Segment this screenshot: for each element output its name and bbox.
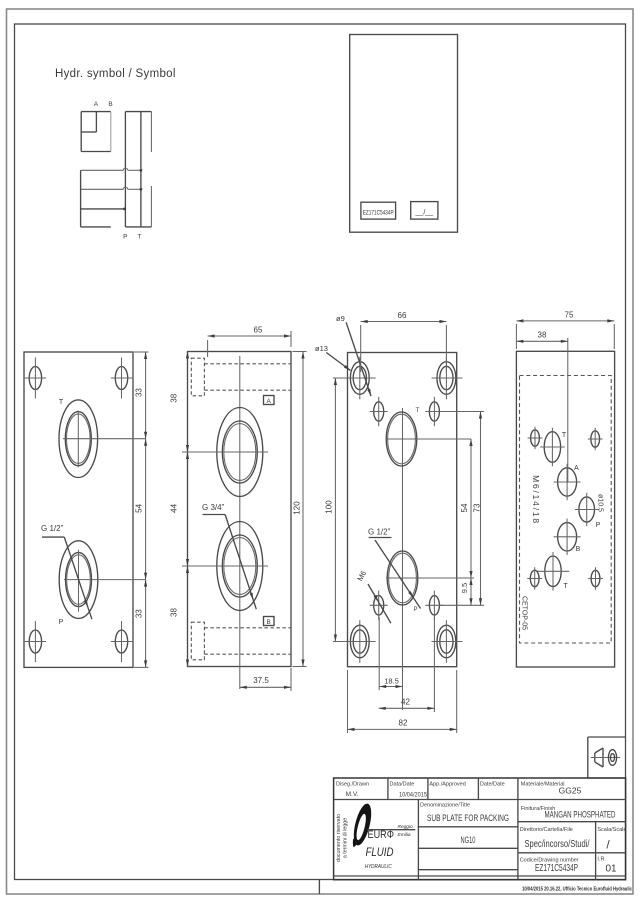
svg-text:B: B xyxy=(576,546,581,553)
svg-text:ø9: ø9 xyxy=(336,314,345,323)
svg-text:P: P xyxy=(59,619,64,626)
svg-text:A: A xyxy=(94,101,99,108)
svg-text:G 1/2”: G 1/2” xyxy=(41,524,64,533)
svg-text:66: 66 xyxy=(398,311,407,320)
svg-text:10/04/2015: 10/04/2015 xyxy=(399,792,427,799)
svg-text:73: 73 xyxy=(473,503,482,512)
svg-text:Spec/incorso/Studi/: Spec/incorso/Studi/ xyxy=(525,838,590,850)
svg-text:82: 82 xyxy=(399,719,408,728)
svg-text:T: T xyxy=(563,583,568,590)
svg-text:M6/14/18: M6/14/18 xyxy=(531,475,541,525)
svg-text:65: 65 xyxy=(254,326,263,335)
svg-text:37.5: 37.5 xyxy=(253,676,269,685)
svg-text:M.V.: M.V. xyxy=(346,791,359,798)
svg-text:EZ171C5434P: EZ171C5434P xyxy=(535,862,578,874)
svg-text:54: 54 xyxy=(460,503,469,512)
svg-text:NG10: NG10 xyxy=(461,835,476,845)
svg-text:Data/Date: Data/Date xyxy=(390,782,415,788)
svg-text:I.R.: I.R. xyxy=(597,856,606,862)
svg-text:EZ171C5434P: EZ171C5434P xyxy=(363,210,394,217)
svg-text:Hydr. symbol / Symbol: Hydr. symbol / Symbol xyxy=(55,68,176,80)
svg-text:38: 38 xyxy=(170,393,179,402)
svg-text:GG25: GG25 xyxy=(559,786,582,796)
svg-text:T: T xyxy=(562,432,567,439)
svg-text:B: B xyxy=(267,619,271,626)
svg-text:A: A xyxy=(574,465,579,472)
svg-text:Date/Date: Date/Date xyxy=(480,782,505,788)
svg-text:Emilia: Emilia xyxy=(398,832,411,838)
svg-text:T: T xyxy=(138,234,142,241)
svg-text:Scala/Scale: Scala/Scale xyxy=(597,827,626,833)
svg-text:FLUID: FLUID xyxy=(366,845,394,859)
svg-text:33: 33 xyxy=(135,388,144,397)
svg-text:T: T xyxy=(59,399,64,406)
svg-text:ø13: ø13 xyxy=(315,344,328,353)
svg-text:ø10.5: ø10.5 xyxy=(597,494,604,512)
svg-text:App./Approved: App./Approved xyxy=(429,782,465,788)
svg-text:CETOP-05: CETOP-05 xyxy=(521,596,528,630)
svg-text:G 3/4”: G 3/4” xyxy=(202,503,225,512)
svg-text:38: 38 xyxy=(538,331,547,340)
svg-text:42: 42 xyxy=(401,698,410,707)
svg-text:Diseg./Drawn: Diseg./Drawn xyxy=(336,782,369,788)
svg-text:a termini di legge: a termini di legge xyxy=(343,818,349,858)
svg-text:SUB PLATE FOR PACKING: SUB PLATE FOR PACKING xyxy=(427,813,509,823)
svg-text:38: 38 xyxy=(170,608,179,617)
svg-text:120: 120 xyxy=(293,501,302,515)
svg-text:100: 100 xyxy=(325,500,334,514)
svg-text:44: 44 xyxy=(170,503,179,512)
svg-text:A: A xyxy=(267,398,272,405)
svg-text:P: P xyxy=(596,522,601,529)
svg-text:54: 54 xyxy=(135,503,144,512)
svg-text:documento riservato: documento riservato xyxy=(336,814,342,862)
svg-text:18.5: 18.5 xyxy=(384,677,399,686)
svg-text:75: 75 xyxy=(565,311,574,320)
svg-text:10/04/2015 20.16.22, Ufficio T: 10/04/2015 20.16.22, Ufficio Tecnico Eur… xyxy=(522,887,633,893)
svg-text:B: B xyxy=(108,101,112,108)
svg-text:Direttorio/Cartella/File: Direttorio/Cartella/File xyxy=(520,827,573,833)
svg-text:T: T xyxy=(416,408,420,414)
svg-text:9.5: 9.5 xyxy=(460,583,469,593)
svg-text:Denominazione/Title: Denominazione/Title xyxy=(420,802,470,808)
svg-text:HYDRAULIC: HYDRAULIC xyxy=(365,864,393,870)
svg-text:__/__: __/__ xyxy=(415,210,434,217)
svg-text:MANGAN PHOSPHATED: MANGAN PHOSPHATED xyxy=(545,810,616,820)
svg-text:EURΦ: EURΦ xyxy=(368,829,395,841)
svg-text:G 1/2”: G 1/2” xyxy=(368,528,391,537)
svg-text:P: P xyxy=(123,234,127,241)
svg-text:01: 01 xyxy=(605,863,617,874)
svg-text:Reggio: Reggio xyxy=(398,824,414,830)
svg-text:33: 33 xyxy=(135,609,144,618)
svg-text:P: P xyxy=(413,607,417,613)
